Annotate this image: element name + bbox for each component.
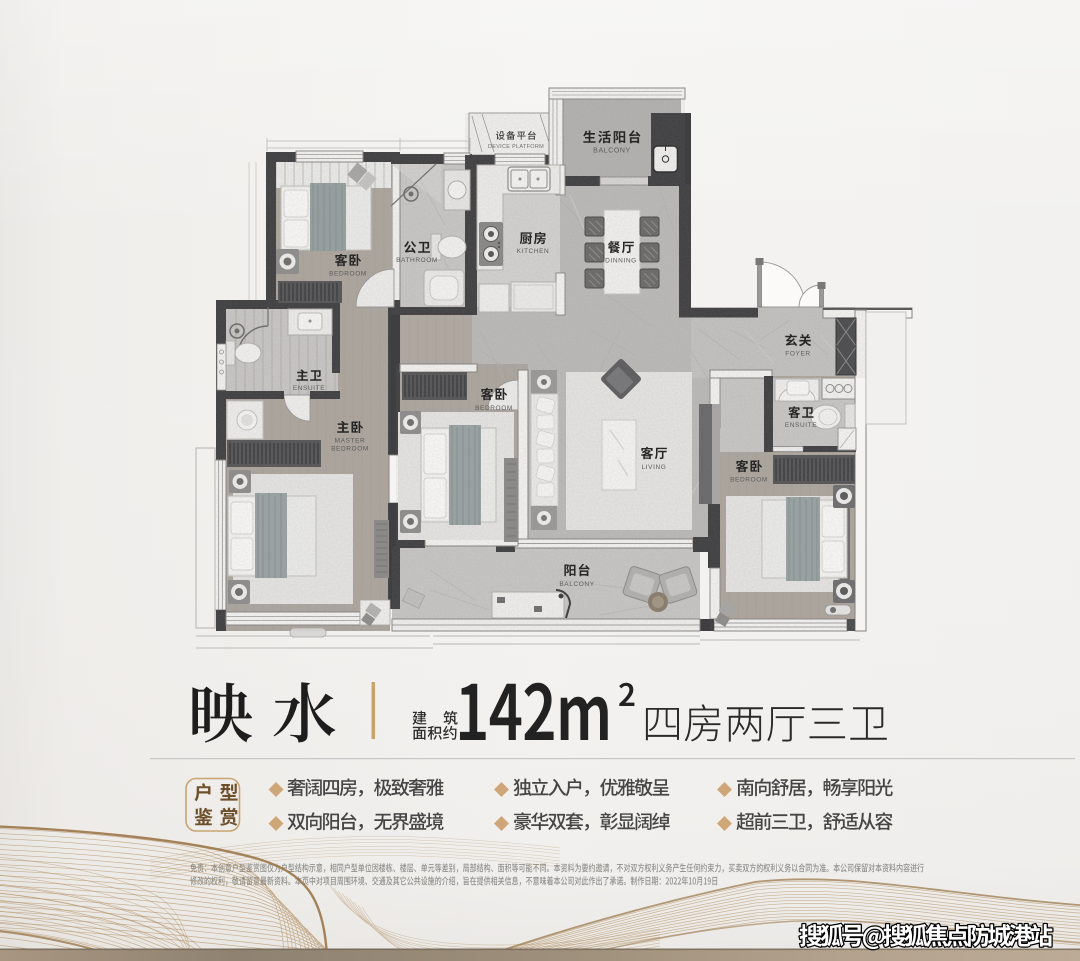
svg-text:BATHROOM: BATHROOM: [396, 257, 438, 264]
svg-text:LIVING: LIVING: [642, 464, 667, 471]
svg-text:BALCONY: BALCONY: [559, 581, 594, 588]
svg-text:FOYER: FOYER: [785, 351, 810, 358]
svg-text:KITCHEN: KITCHEN: [517, 248, 550, 255]
svg-text:DINNING: DINNING: [605, 258, 637, 265]
svg-text:BEDROOM: BEDROOM: [331, 446, 369, 453]
svg-text:BEDROOM: BEDROOM: [329, 271, 367, 278]
svg-text:MASTER: MASTER: [335, 438, 366, 445]
svg-text:BALCONY: BALCONY: [593, 148, 631, 155]
svg-text:DEVICE PLATFORM: DEVICE PLATFORM: [488, 144, 544, 150]
svg-text:ENSUITE: ENSUITE: [785, 422, 817, 429]
svg-text:BEDROOM: BEDROOM: [730, 477, 768, 484]
svg-text:ENSUITE: ENSUITE: [293, 385, 325, 392]
svg-text:BEDROOM: BEDROOM: [475, 405, 513, 412]
